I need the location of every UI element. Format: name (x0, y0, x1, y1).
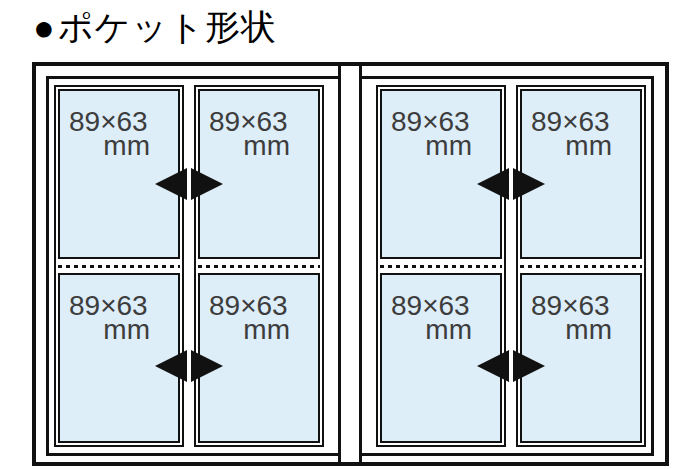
album-inner: 89×63 mm 89×63 mm (36, 66, 665, 462)
pocket-unit-text: mm (531, 318, 613, 342)
pocket-size-label: 89×63 mm (391, 294, 473, 342)
pocket-size-label: 89×63 mm (209, 294, 291, 342)
arrow-right-icon (191, 168, 223, 200)
pocket-size-label: 89×63 mm (69, 294, 151, 342)
pocket-size-label: 89×63 mm (531, 110, 613, 158)
arrow-left-icon (477, 168, 509, 200)
page-title: ● ポケット形状 (33, 4, 277, 51)
insert-direction-arrows (477, 350, 545, 382)
pocket-size-label: 89×63 mm (391, 110, 473, 158)
fold-gap (380, 259, 502, 273)
fold-gap (198, 259, 320, 273)
arrow-right-icon (191, 350, 223, 382)
arrow-right-icon (513, 168, 545, 200)
pocket-size-label: 89×63 mm (209, 110, 291, 158)
fold-dotted-line (58, 265, 180, 268)
fold-gap (520, 259, 642, 273)
pocket-unit-text: mm (391, 318, 473, 342)
insert-direction-arrows (477, 168, 545, 200)
fold-gap (58, 259, 180, 273)
pocket-size-label: 89×63 mm (531, 294, 613, 342)
album-spread: 89×63 mm 89×63 mm (32, 62, 669, 466)
pocket-unit-text: mm (391, 134, 473, 158)
page-title-text: ポケット形状 (58, 4, 277, 51)
pocket-unit-text: mm (531, 134, 613, 158)
pocket-frame-4: 89×63 mm 89×63 mm (516, 85, 646, 447)
pocket-shape-diagram: ● ポケット形状 89×63 mm (0, 0, 700, 469)
pocket-frame-2: 89×63 mm 89×63 mm (194, 85, 324, 447)
pocket-size-label: 89×63 mm (69, 110, 151, 158)
arrow-left-icon (155, 350, 187, 382)
pocket-frame-1: 89×63 mm 89×63 mm (54, 85, 184, 447)
arrow-right-icon (513, 350, 545, 382)
pocket-unit-text: mm (209, 134, 291, 158)
arrow-left-icon (477, 350, 509, 382)
fold-dotted-line (198, 265, 320, 268)
left-page: 89×63 mm 89×63 mm (46, 76, 341, 456)
bullet-icon: ● (33, 10, 56, 46)
fold-dotted-line (520, 265, 642, 268)
insert-direction-arrows (155, 168, 223, 200)
pocket-unit-text: mm (209, 318, 291, 342)
pocket-unit-text: mm (69, 134, 151, 158)
pocket-frame-3: 89×63 mm 89×63 mm (376, 85, 506, 447)
arrow-left-icon (155, 168, 187, 200)
fold-dotted-line (380, 265, 502, 268)
right-page: 89×63 mm 89×63 mm (359, 76, 654, 456)
pocket-unit-text: mm (69, 318, 151, 342)
insert-direction-arrows (155, 350, 223, 382)
